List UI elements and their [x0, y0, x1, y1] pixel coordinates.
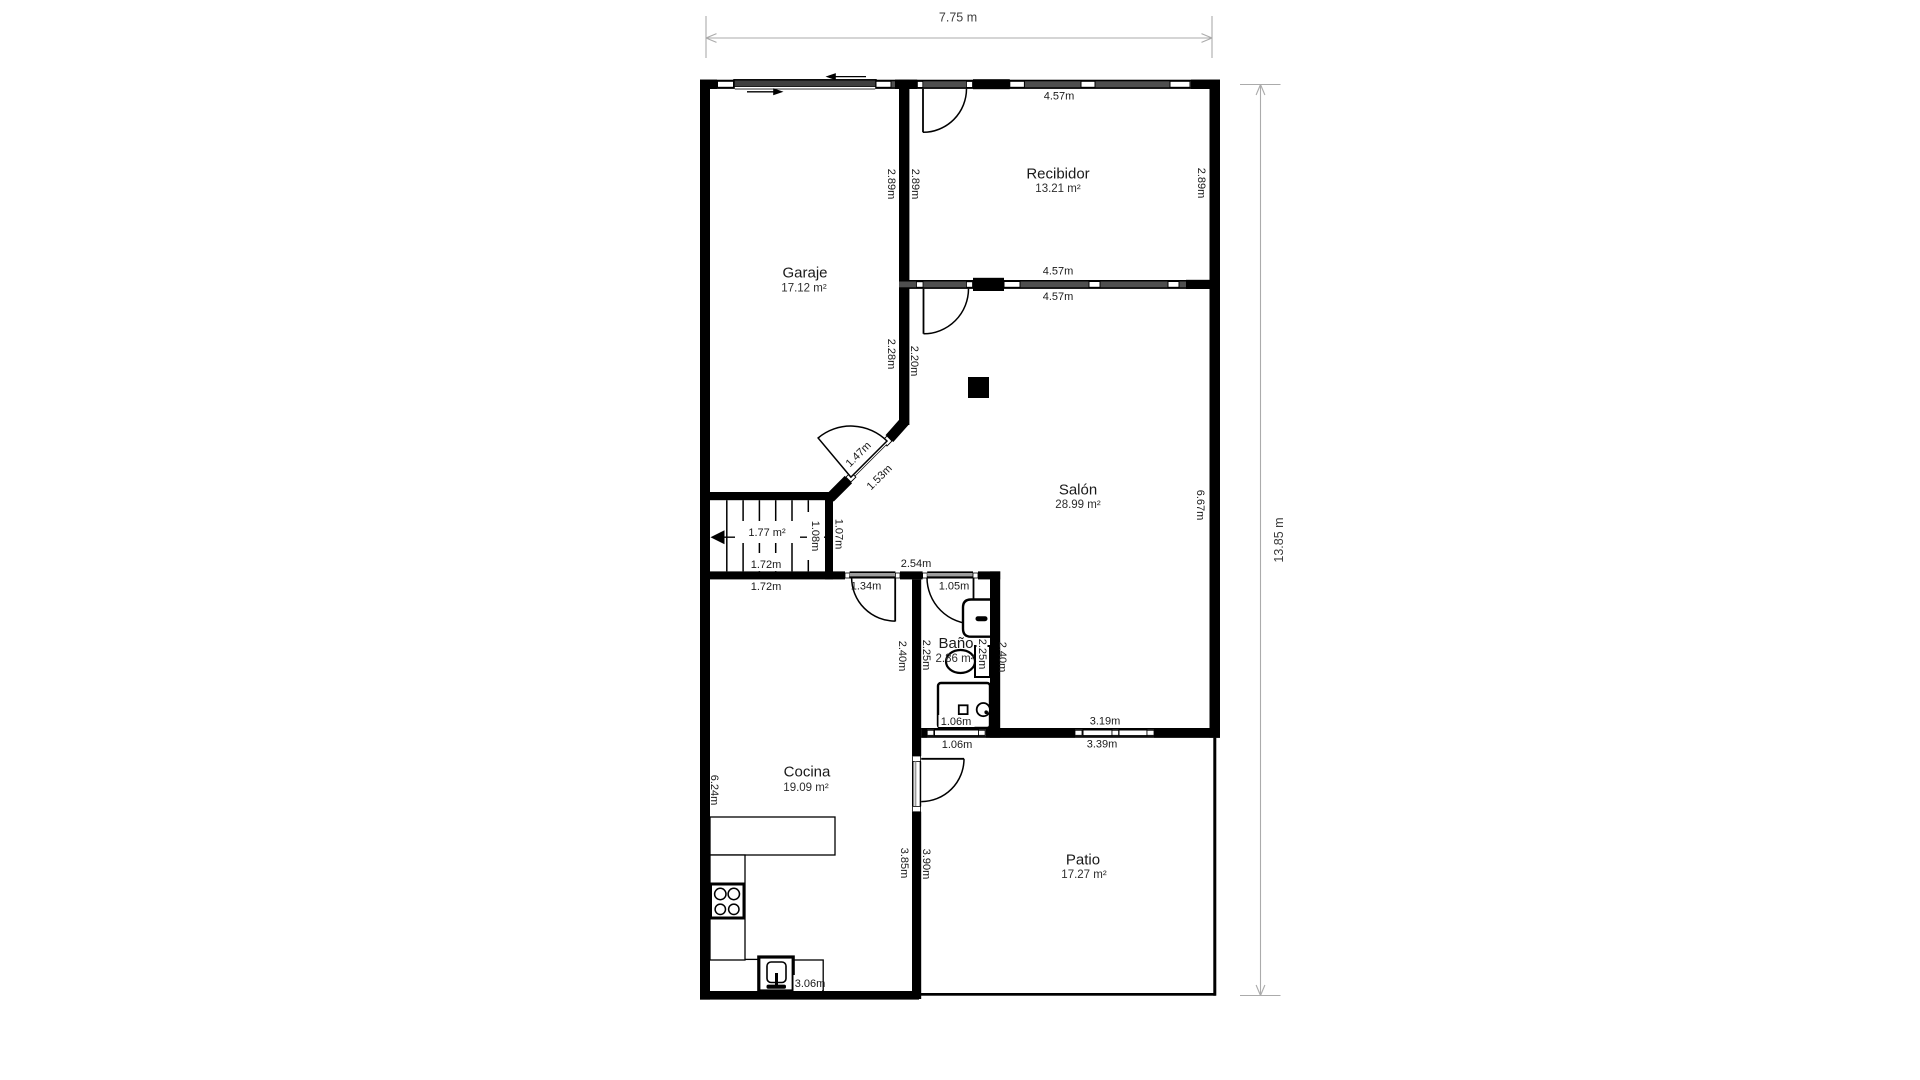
svg-text:17.12 m²: 17.12 m²: [781, 283, 827, 295]
svg-text:2.40m: 2.40m: [996, 642, 1008, 673]
svg-text:Cocina: Cocina: [784, 764, 831, 781]
svg-text:1.34m: 1.34m: [851, 581, 882, 593]
svg-text:3.85m: 3.85m: [898, 848, 910, 879]
svg-text:7.75 m: 7.75 m: [939, 11, 977, 25]
svg-text:3.06m: 3.06m: [795, 978, 826, 990]
svg-text:2.86 m²: 2.86 m²: [936, 653, 975, 665]
svg-text:17.27 m²: 17.27 m²: [1061, 869, 1107, 881]
svg-text:2.89m: 2.89m: [885, 169, 897, 200]
svg-text:2.25m: 2.25m: [976, 639, 988, 670]
svg-text:Garaje: Garaje: [782, 265, 827, 282]
svg-text:4.57m: 4.57m: [1043, 266, 1074, 278]
svg-text:2.25m: 2.25m: [920, 640, 932, 671]
svg-text:Baño: Baño: [938, 635, 973, 652]
svg-text:1.07m: 1.07m: [832, 519, 844, 550]
svg-text:1.77 m²: 1.77 m²: [748, 527, 786, 539]
svg-text:4.57m: 4.57m: [1043, 291, 1074, 303]
svg-text:1.05m: 1.05m: [939, 581, 970, 593]
svg-text:1.06m: 1.06m: [942, 739, 973, 751]
svg-text:19.09 m²: 19.09 m²: [783, 782, 829, 794]
svg-text:13.85 m: 13.85 m: [1272, 517, 1286, 562]
svg-text:3.90m: 3.90m: [920, 849, 932, 880]
svg-text:3.39m: 3.39m: [1087, 739, 1118, 751]
svg-text:6.24m: 6.24m: [708, 775, 720, 806]
svg-text:2.28m: 2.28m: [885, 339, 897, 370]
svg-text:13.21 m²: 13.21 m²: [1035, 183, 1081, 195]
svg-text:2.89m: 2.89m: [1195, 168, 1207, 199]
svg-text:2.40m: 2.40m: [896, 641, 908, 672]
svg-text:1.72m: 1.72m: [751, 559, 782, 571]
svg-text:2.20m: 2.20m: [908, 346, 920, 377]
svg-text:1.72m: 1.72m: [751, 581, 782, 593]
svg-text:3.19m: 3.19m: [1090, 716, 1121, 728]
svg-text:28.99 m²: 28.99 m²: [1055, 499, 1101, 511]
svg-text:Patio: Patio: [1066, 852, 1100, 869]
svg-text:2.89m: 2.89m: [909, 169, 921, 200]
svg-text:2.54m: 2.54m: [901, 558, 932, 570]
svg-text:Recibidor: Recibidor: [1026, 166, 1089, 183]
svg-text:6.67m: 6.67m: [1194, 490, 1206, 521]
svg-text:1.08m: 1.08m: [809, 521, 821, 552]
svg-text:1.06m: 1.06m: [941, 716, 972, 728]
svg-text:4.57m: 4.57m: [1044, 91, 1075, 103]
svg-text:Salón: Salón: [1059, 482, 1097, 499]
